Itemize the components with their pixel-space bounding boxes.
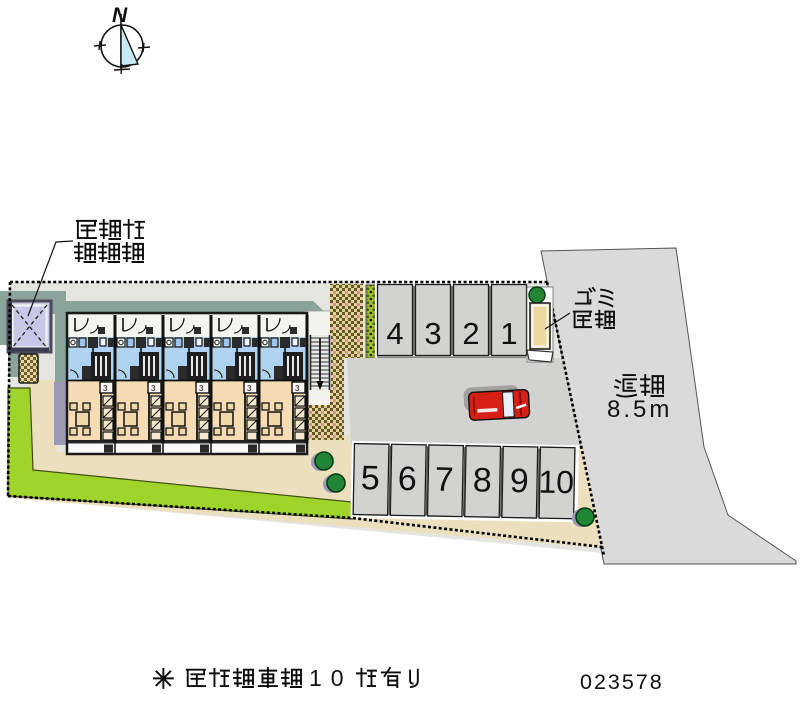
svg-text:8: 8 [472,461,492,499]
svg-text:7: 7 [434,461,454,499]
svg-text:10: 10 [538,464,574,501]
svg-text:1: 1 [500,316,517,351]
svg-text:3: 3 [199,384,204,393]
svg-text:5: 5 [360,459,380,497]
svg-text:4: 4 [386,316,403,351]
svg-text:3: 3 [247,384,252,393]
svg-text:8.5m: 8.5m [607,396,672,423]
svg-text:2: 2 [462,316,479,351]
svg-text:3: 3 [424,316,441,351]
svg-text:10: 10 [309,665,353,691]
svg-text:9: 9 [509,462,529,500]
svg-text:N: N [112,4,128,27]
svg-text:3: 3 [151,384,156,393]
svg-text:3: 3 [103,384,108,393]
svg-text:023578: 023578 [580,670,664,694]
svg-text:3: 3 [295,384,300,393]
svg-text:6: 6 [397,460,417,498]
